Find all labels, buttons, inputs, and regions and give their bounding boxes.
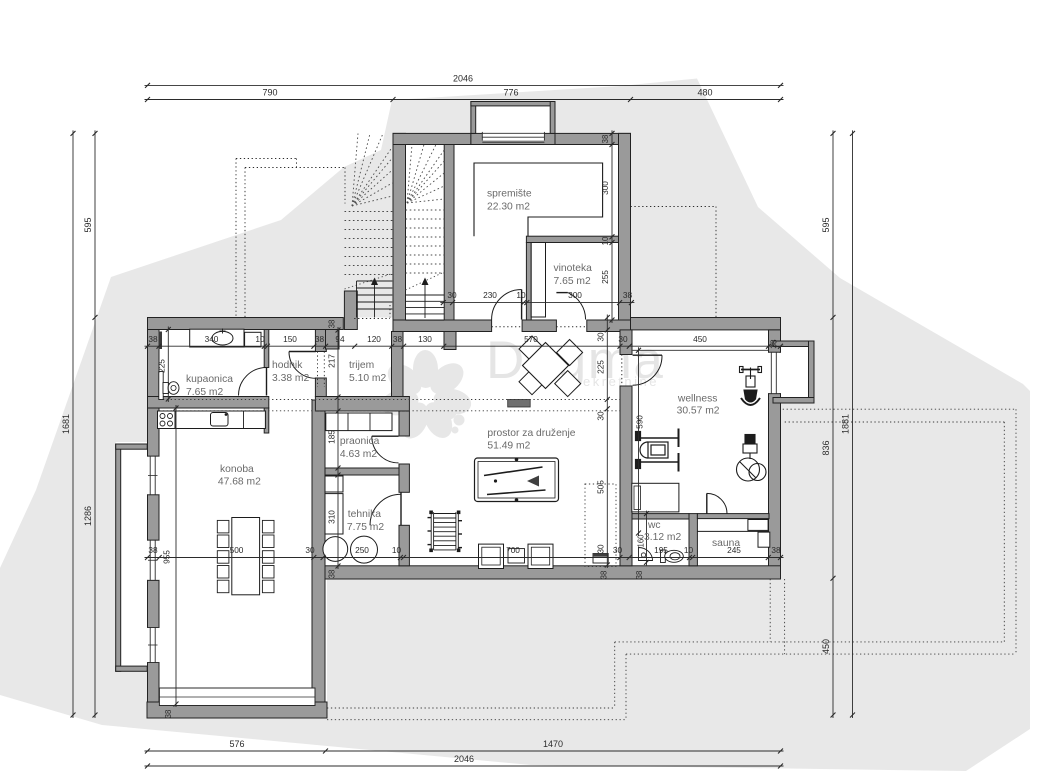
svg-text:vinoteka: vinoteka bbox=[554, 263, 593, 274]
svg-text:wc: wc bbox=[647, 520, 661, 531]
svg-text:38: 38 bbox=[328, 320, 337, 329]
svg-text:1681: 1681 bbox=[61, 414, 71, 434]
svg-text:225: 225 bbox=[596, 360, 606, 374]
svg-text:595: 595 bbox=[83, 217, 93, 232]
svg-text:51.49 m2: 51.49 m2 bbox=[487, 441, 530, 452]
svg-text:30: 30 bbox=[305, 545, 315, 555]
svg-text:1286: 1286 bbox=[83, 506, 93, 526]
svg-text:195: 195 bbox=[654, 545, 668, 555]
svg-text:250: 250 bbox=[355, 545, 369, 555]
svg-text:prostor za druženje: prostor za druženje bbox=[487, 428, 575, 439]
svg-text:340: 340 bbox=[205, 334, 219, 344]
svg-text:2046: 2046 bbox=[453, 74, 473, 84]
svg-text:kupaonica: kupaonica bbox=[186, 374, 233, 385]
svg-text:30: 30 bbox=[596, 332, 606, 342]
svg-text:776: 776 bbox=[503, 88, 518, 98]
svg-text:450: 450 bbox=[821, 639, 831, 654]
svg-text:38: 38 bbox=[328, 570, 337, 579]
svg-text:500: 500 bbox=[230, 545, 244, 555]
svg-text:150: 150 bbox=[283, 334, 297, 344]
svg-text:595: 595 bbox=[821, 217, 831, 232]
svg-text:505: 505 bbox=[596, 480, 606, 494]
svg-text:700: 700 bbox=[506, 545, 520, 555]
svg-text:217: 217 bbox=[327, 354, 337, 368]
svg-text:spremište: spremište bbox=[487, 189, 532, 200]
svg-text:185: 185 bbox=[327, 430, 337, 444]
svg-text:10: 10 bbox=[601, 236, 610, 245]
svg-text:130: 130 bbox=[418, 334, 432, 344]
svg-text:10: 10 bbox=[684, 545, 694, 555]
svg-text:30: 30 bbox=[618, 334, 628, 344]
svg-text:1470: 1470 bbox=[543, 739, 563, 749]
svg-text:570: 570 bbox=[524, 334, 538, 344]
svg-text:120: 120 bbox=[367, 334, 381, 344]
svg-text:576: 576 bbox=[229, 739, 244, 749]
svg-text:450: 450 bbox=[693, 334, 707, 344]
svg-text:255: 255 bbox=[600, 270, 610, 284]
svg-text:10: 10 bbox=[255, 334, 265, 344]
svg-text:30.57 m2: 30.57 m2 bbox=[677, 406, 720, 417]
svg-text:38: 38 bbox=[393, 334, 403, 344]
svg-text:480: 480 bbox=[697, 88, 712, 98]
svg-text:7.75 m2: 7.75 m2 bbox=[347, 522, 384, 533]
svg-text:30: 30 bbox=[613, 545, 623, 555]
svg-text:225: 225 bbox=[157, 359, 167, 373]
svg-text:47.68 m2: 47.68 m2 bbox=[218, 477, 261, 488]
svg-text:38: 38 bbox=[601, 135, 610, 144]
svg-text:konoba: konoba bbox=[220, 464, 254, 475]
svg-text:trijem: trijem bbox=[349, 360, 374, 371]
svg-text:2046: 2046 bbox=[454, 754, 474, 764]
svg-text:3.12 m2: 3.12 m2 bbox=[644, 532, 681, 543]
svg-text:4.63 m2: 4.63 m2 bbox=[340, 449, 377, 460]
svg-text:30: 30 bbox=[596, 544, 606, 554]
svg-text:230: 230 bbox=[483, 290, 497, 300]
svg-text:hodnik: hodnik bbox=[272, 360, 303, 371]
svg-text:300: 300 bbox=[568, 290, 582, 300]
svg-text:30: 30 bbox=[596, 411, 606, 421]
svg-text:wellness: wellness bbox=[677, 394, 718, 405]
svg-text:955: 955 bbox=[162, 550, 172, 564]
svg-text:590: 590 bbox=[635, 415, 645, 429]
svg-text:7.65 m2: 7.65 m2 bbox=[554, 276, 591, 287]
svg-text:38: 38 bbox=[635, 571, 644, 580]
svg-text:310: 310 bbox=[327, 510, 337, 524]
svg-text:30: 30 bbox=[447, 290, 457, 300]
svg-text:836: 836 bbox=[821, 440, 831, 455]
svg-text:38: 38 bbox=[771, 545, 781, 555]
svg-text:22.30 m2: 22.30 m2 bbox=[487, 202, 530, 213]
svg-text:10: 10 bbox=[392, 545, 402, 555]
svg-text:38: 38 bbox=[164, 710, 173, 719]
svg-text:10: 10 bbox=[516, 290, 526, 300]
svg-text:300: 300 bbox=[600, 181, 610, 195]
svg-text:38: 38 bbox=[623, 290, 633, 300]
svg-text:tehnika: tehnika bbox=[348, 509, 381, 520]
svg-text:790: 790 bbox=[262, 88, 277, 98]
svg-text:3.38 m2: 3.38 m2 bbox=[272, 373, 309, 384]
svg-text:38: 38 bbox=[315, 334, 325, 344]
svg-text:sauna: sauna bbox=[712, 538, 740, 549]
svg-text:38: 38 bbox=[600, 571, 609, 580]
svg-text:94: 94 bbox=[335, 334, 345, 344]
svg-text:praonica: praonica bbox=[340, 436, 380, 447]
svg-text:38: 38 bbox=[148, 545, 158, 555]
svg-text:5.10 m2: 5.10 m2 bbox=[349, 373, 386, 384]
svg-text:1881: 1881 bbox=[841, 414, 851, 434]
svg-text:7.65 m2: 7.65 m2 bbox=[186, 387, 223, 398]
svg-text:38: 38 bbox=[148, 334, 158, 344]
svg-text:38: 38 bbox=[769, 339, 779, 349]
